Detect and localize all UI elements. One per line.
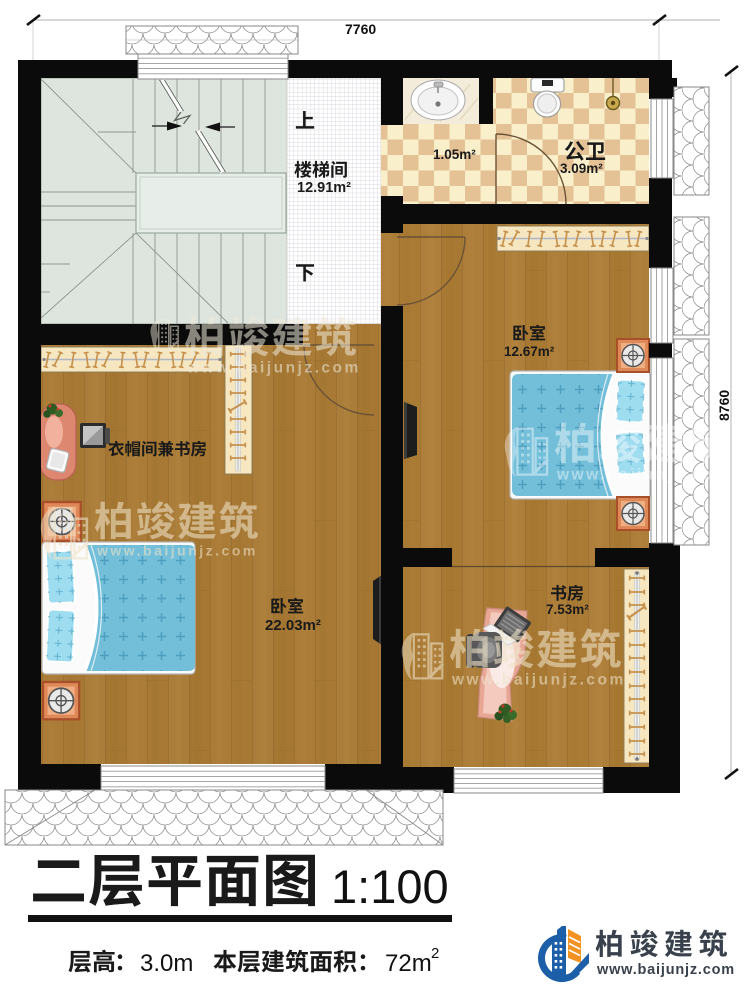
- svg-text:1.05m²: 1.05m²: [433, 147, 476, 162]
- svg-text:www.baijunjz.com: www.baijunjz.com: [451, 672, 626, 689]
- svg-text:2: 2: [431, 945, 439, 962]
- svg-text:7.53m²: 7.53m²: [546, 602, 589, 617]
- svg-text:22.03m²: 22.03m²: [265, 617, 321, 634]
- svg-text:www.baijunjz.com: www.baijunjz.com: [556, 467, 731, 484]
- svg-text:1:100: 1:100: [331, 860, 449, 913]
- svg-text:7760: 7760: [345, 21, 376, 37]
- svg-text:8760: 8760: [716, 390, 732, 421]
- svg-text:www.baijunjz.com: www.baijunjz.com: [96, 543, 258, 559]
- svg-text:12.91m²: 12.91m²: [297, 180, 351, 196]
- svg-text:72m: 72m: [385, 950, 432, 977]
- svg-text:www.baijunjz.com: www.baijunjz.com: [186, 360, 361, 377]
- svg-text:3.0m: 3.0m: [140, 950, 193, 977]
- svg-text:www.baijunjz.com: www.baijunjz.com: [596, 962, 735, 978]
- svg-text:12.67m²: 12.67m²: [504, 344, 555, 359]
- svg-text:3.09m²: 3.09m²: [560, 161, 603, 176]
